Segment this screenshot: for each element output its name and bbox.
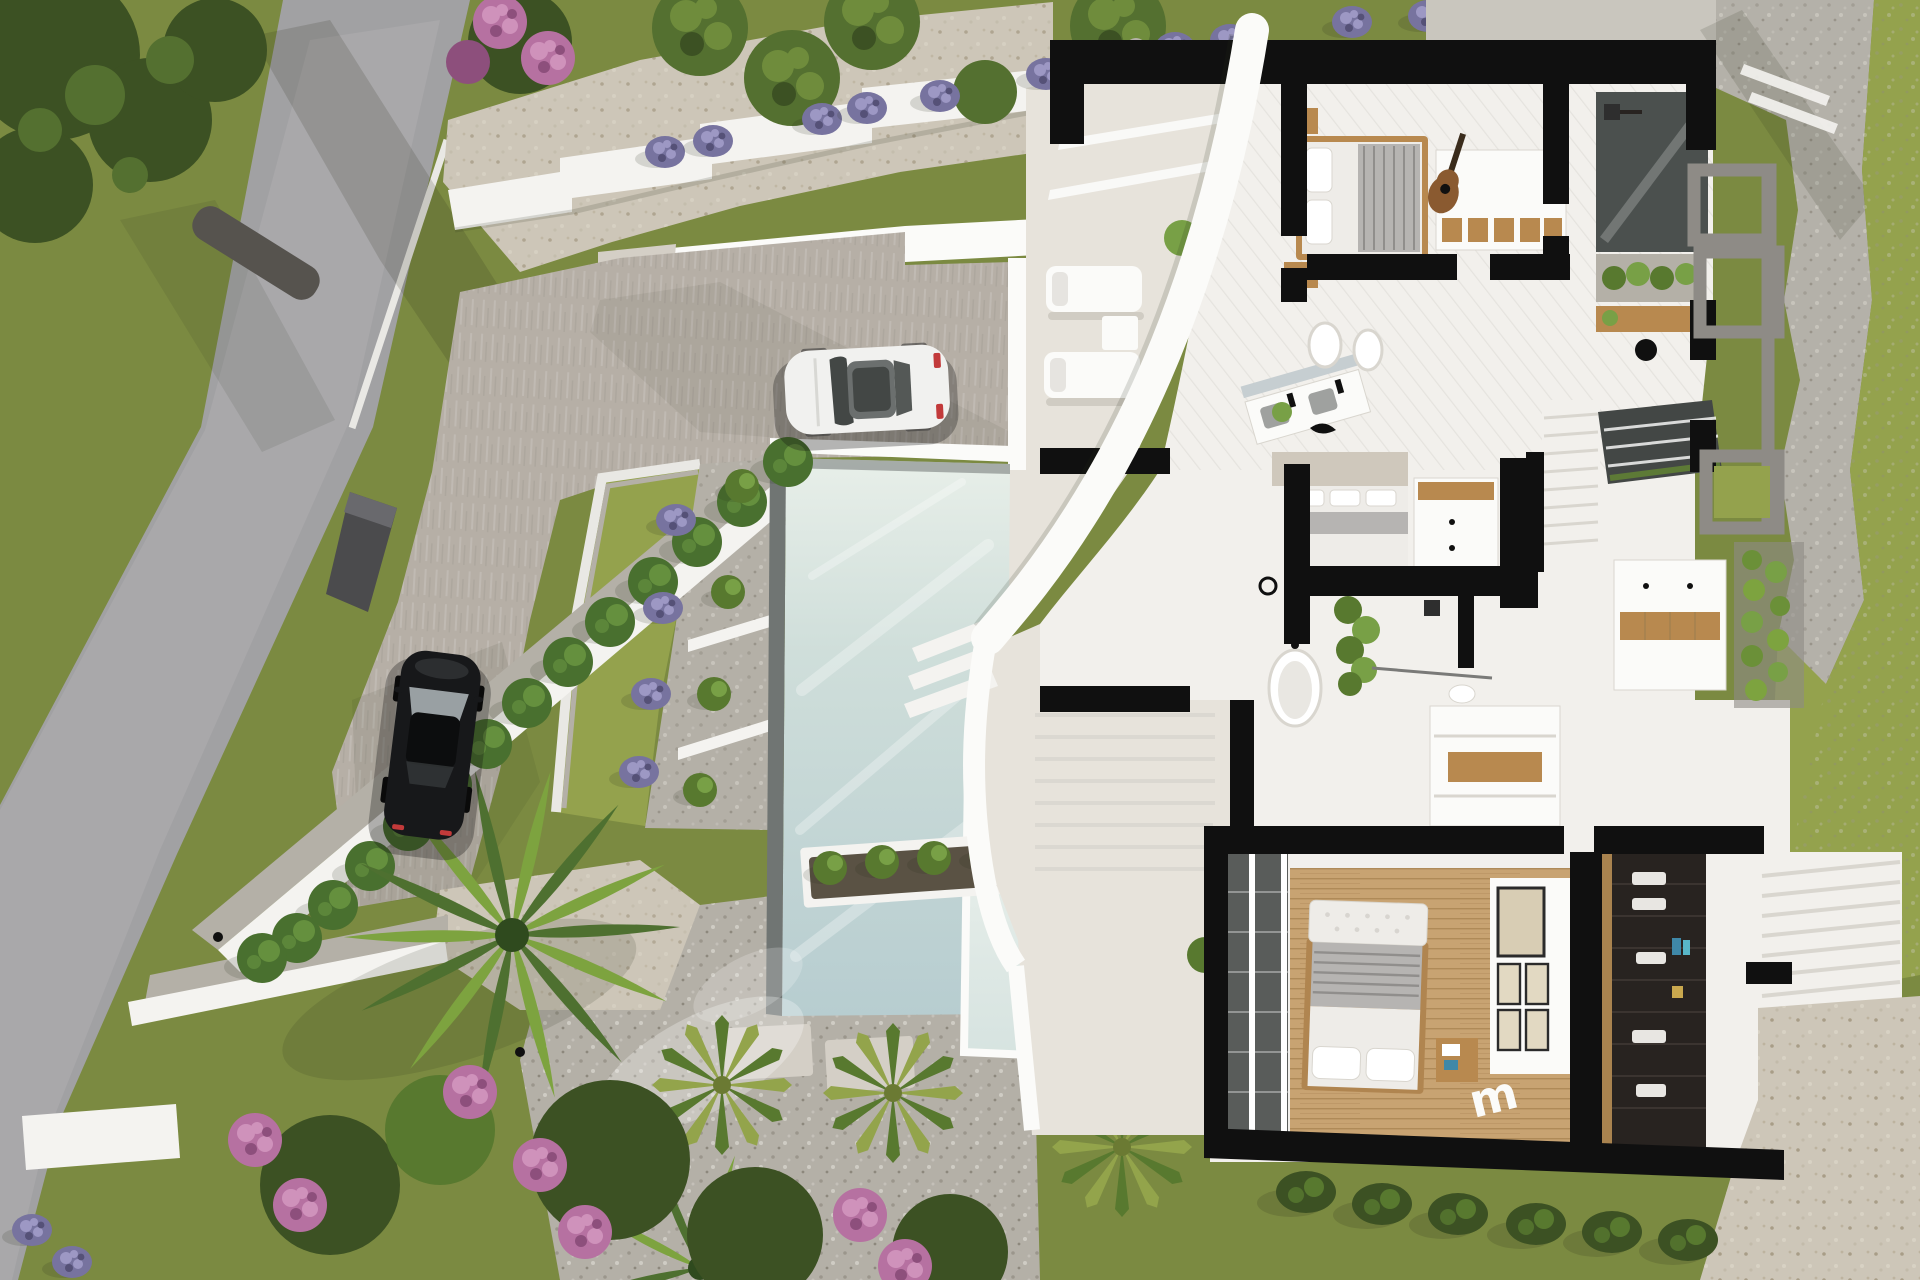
picture-frame <box>1526 1010 1548 1050</box>
pillow <box>1330 490 1360 506</box>
bathroom-plant <box>1272 402 1292 422</box>
landing <box>1706 852 1762 1142</box>
shower-head <box>1604 104 1620 120</box>
sun-lounger <box>1046 266 1144 320</box>
taillight <box>936 404 944 419</box>
ground-spotlight <box>515 1047 525 1057</box>
folded-clothes <box>1636 952 1666 964</box>
rear-window <box>894 359 913 416</box>
picture-frame <box>1498 964 1520 1004</box>
grass-niche <box>1714 466 1770 518</box>
stool <box>1449 685 1475 703</box>
villa-aerial-render: m <box>0 0 1920 1280</box>
pillow <box>1366 490 1396 506</box>
wall-top <box>1050 40 1716 84</box>
garage-panel <box>1430 706 1560 826</box>
folded-clothes <box>1632 1030 1666 1043</box>
folded-clothes <box>1636 1084 1666 1097</box>
throw-blanket <box>1358 144 1420 252</box>
pillow <box>1312 1046 1361 1080</box>
bed <box>1296 136 1428 260</box>
desk-chair <box>1635 339 1657 361</box>
ground-spotlight <box>213 932 223 942</box>
roof-glass <box>852 366 891 412</box>
white-sports-car <box>771 341 960 452</box>
picture-frame <box>1498 1010 1520 1050</box>
toilet <box>1309 323 1341 367</box>
book <box>1672 986 1683 998</box>
bidet <box>1354 330 1382 370</box>
vertical-garden <box>1734 542 1804 708</box>
render-canvas: m <box>0 0 1920 1280</box>
deck-divider-wall <box>1008 258 1026 470</box>
picture-frame <box>1526 964 1548 1004</box>
lightwell-garden <box>1596 254 1706 302</box>
picture-frame <box>1498 888 1544 956</box>
roof <box>405 711 461 769</box>
side-table <box>1102 316 1138 350</box>
tufted-headboard <box>1309 900 1428 946</box>
small-tree <box>953 60 1017 124</box>
pillow <box>1366 1048 1415 1082</box>
bed <box>1301 900 1430 1094</box>
walk-in-closet <box>1602 852 1706 1148</box>
folded-clothes <box>1632 898 1666 910</box>
wood-niche <box>1448 752 1542 782</box>
pillow <box>1306 148 1332 192</box>
shower-head <box>1424 600 1440 616</box>
folded-clothes <box>1632 872 1666 885</box>
book <box>1672 938 1681 955</box>
mid-staircase <box>1542 400 1600 570</box>
taillight <box>933 353 941 368</box>
book <box>1683 940 1690 955</box>
dresser-niche <box>1418 482 1494 500</box>
desk-plant <box>1602 310 1618 326</box>
stone-strip-top <box>1426 0 1716 42</box>
corridor-cabinet <box>1614 560 1726 690</box>
pillow <box>1306 200 1332 244</box>
gallery-wall <box>1490 878 1574 1074</box>
